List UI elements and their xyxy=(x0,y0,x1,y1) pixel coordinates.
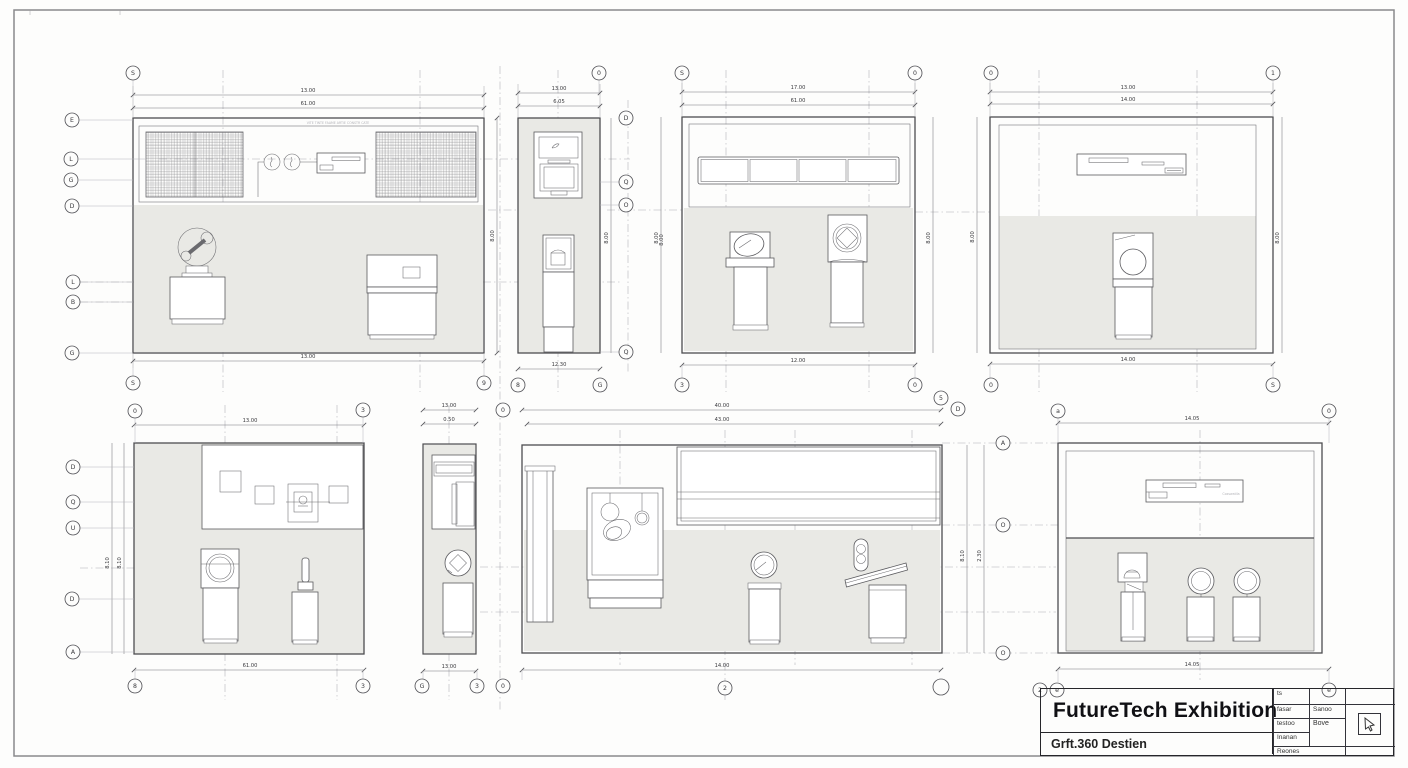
grid-bubble: E xyxy=(65,113,79,127)
svg-text:8.00: 8.00 xyxy=(490,230,496,242)
round-diamond-exhibit xyxy=(445,550,471,576)
svg-text:8.00: 8.00 xyxy=(654,232,660,244)
grid-bubble: 5 xyxy=(934,391,948,405)
svg-text:61.00: 61.00 xyxy=(301,101,316,107)
grid-bubble: L xyxy=(64,152,78,166)
svg-text:2: 2 xyxy=(723,685,727,692)
sign-micro-text: Coxswatila xyxy=(1222,492,1239,496)
info-sign: Coxswatila xyxy=(1146,480,1243,502)
svg-text:L: L xyxy=(71,279,75,286)
ring-exhibit-2 xyxy=(1233,568,1260,641)
svg-text:8.10: 8.10 xyxy=(960,550,966,562)
grid-bubble: 0 xyxy=(984,66,998,80)
grid-bubble: Q xyxy=(66,495,80,509)
grid-bubble: L xyxy=(66,275,80,289)
svg-text:0: 0 xyxy=(597,70,601,77)
svg-text:G: G xyxy=(70,350,75,357)
svg-text:13.00: 13.00 xyxy=(301,88,316,94)
grid-bubble: 0 xyxy=(908,66,922,80)
grid-bubble: 0 xyxy=(1322,404,1336,418)
grid-bubble: 3 xyxy=(675,378,689,392)
column-pillar xyxy=(525,466,555,622)
round-display-mid xyxy=(748,552,781,644)
wall-fixture-icons xyxy=(258,154,317,197)
capsule-object xyxy=(854,539,868,571)
svg-text:43.00: 43.00 xyxy=(715,417,730,423)
grid-bubble: D xyxy=(619,111,633,125)
grid-bubble: 0 xyxy=(984,378,998,392)
svg-text:3: 3 xyxy=(680,382,684,389)
wall-sign xyxy=(317,153,365,173)
elevation-panel-5: 13.00 61.00 8.10 8.10 xyxy=(79,417,366,679)
svg-text:8.00: 8.00 xyxy=(926,232,932,244)
pedestal-diamond-exhibit xyxy=(828,215,867,327)
window-strip xyxy=(698,157,899,184)
display-case-round xyxy=(201,549,239,643)
display-case-exhibit xyxy=(367,255,437,339)
svg-text:S: S xyxy=(131,70,135,77)
svg-text:B: B xyxy=(71,299,75,306)
titleblock-cell: Reones xyxy=(1273,746,1345,755)
grid-bubble: U xyxy=(66,521,80,535)
svg-text:40.00: 40.00 xyxy=(715,403,730,409)
svg-text:17.00: 17.00 xyxy=(791,85,806,91)
svg-text:3: 3 xyxy=(361,683,365,690)
grid-bubble: Q xyxy=(619,175,633,189)
grid-bubble: a xyxy=(1051,404,1065,418)
grid-bubble: A xyxy=(66,645,80,659)
grid-bubble: 3 xyxy=(470,679,484,693)
svg-text:13.00: 13.00 xyxy=(442,403,457,409)
svg-text:0: 0 xyxy=(989,382,993,389)
svg-text:0: 0 xyxy=(501,407,505,414)
titleblock-cell xyxy=(1309,689,1345,704)
svg-text:D: D xyxy=(71,464,76,471)
svg-text:61.00: 61.00 xyxy=(791,98,806,104)
drawing-sheet: VITE TINTE FAAME ARTIE CONSTR CATE 13.00 xyxy=(0,0,1408,768)
grid-bubble: D xyxy=(951,402,965,416)
grid-bubble: O xyxy=(619,198,633,212)
svg-text:a: a xyxy=(1056,408,1060,415)
titleblock-cell: Bove xyxy=(1309,718,1345,746)
svg-text:S: S xyxy=(1271,382,1275,389)
grid-bubble: S xyxy=(675,66,689,80)
ring-exhibit-1 xyxy=(1187,568,1214,641)
svg-text:Q: Q xyxy=(71,499,76,506)
svg-text:O: O xyxy=(1001,650,1006,657)
grid-bubble: D xyxy=(65,199,79,213)
svg-text:D: D xyxy=(624,115,629,122)
titleblock-cell: ts xyxy=(1273,689,1309,704)
titleblock-cell xyxy=(1345,746,1395,755)
lightbox-band xyxy=(677,447,940,525)
svg-text:13.00: 13.00 xyxy=(243,418,258,424)
grid-bubble: 0 xyxy=(496,679,510,693)
mesh-panel-left xyxy=(146,132,243,197)
grid-bubble: S xyxy=(126,66,140,80)
elevation-panel-4: 13.00 14.00 14.00 8.00 8.00 xyxy=(970,80,1282,378)
svg-text:E: E xyxy=(70,117,74,124)
svg-text:G: G xyxy=(69,177,74,184)
svg-text:2.30: 2.30 xyxy=(977,550,983,562)
stamp-box xyxy=(1358,713,1381,735)
svg-text:S: S xyxy=(131,380,135,387)
svg-text:0: 0 xyxy=(133,408,137,415)
grid-bubble: O xyxy=(996,518,1010,532)
svg-text:14.05: 14.05 xyxy=(1185,662,1200,668)
screen-unit xyxy=(539,137,578,195)
grid-bubble: 0 xyxy=(908,378,922,392)
svg-text:G: G xyxy=(420,683,425,690)
svg-text:0: 0 xyxy=(989,70,993,77)
grid-bubble: D xyxy=(65,592,79,606)
grid-bubble: D xyxy=(66,460,80,474)
svg-text:61.00: 61.00 xyxy=(243,663,258,669)
grid-bubble: 0 xyxy=(496,403,510,417)
svg-text:8.10: 8.10 xyxy=(117,557,123,569)
hanging-objects-case xyxy=(587,488,663,608)
svg-text:13.00: 13.00 xyxy=(301,354,316,360)
titleblock-cell xyxy=(1345,689,1395,704)
svg-text:0: 0 xyxy=(913,70,917,77)
svg-text:3: 3 xyxy=(361,407,365,414)
svg-text:D: D xyxy=(70,596,75,603)
grid-bubble: 3 xyxy=(356,679,370,693)
grid-bubble: S xyxy=(1266,378,1280,392)
grid-bubble: O xyxy=(996,646,1010,660)
svg-text:0.50: 0.50 xyxy=(443,417,455,423)
elevation-panel-8: Coxswatila 14. xyxy=(1056,416,1331,682)
titleblock-cell: Inanan xyxy=(1273,732,1309,746)
svg-text:9: 9 xyxy=(482,380,486,387)
pedestal-sphere-exhibit xyxy=(1113,233,1153,339)
svg-text:12.00: 12.00 xyxy=(791,358,806,364)
grid-bubble: 9 xyxy=(477,376,491,390)
display-case-small xyxy=(543,235,574,352)
svg-text:13.00: 13.00 xyxy=(1121,85,1136,91)
svg-text:8.00: 8.00 xyxy=(970,231,976,243)
svg-text:8: 8 xyxy=(516,382,520,389)
svg-text:3: 3 xyxy=(475,683,479,690)
grid-bubble: 8 xyxy=(128,679,142,693)
grid-bubble: G xyxy=(65,346,79,360)
pedestal-small xyxy=(443,583,473,637)
elevation-panel-3: 17.00 61.00 12.00 8.00 8.00 xyxy=(654,80,933,378)
svg-text:O: O xyxy=(1001,522,1006,529)
grid-bubble: Q xyxy=(619,345,633,359)
grid-bubble xyxy=(933,679,949,695)
spec-note: VITE TINTE FAAME ARTIE CONSTR CATE xyxy=(307,121,370,125)
titleblock-cell: testoo xyxy=(1273,718,1309,732)
svg-text:14.00: 14.00 xyxy=(715,663,730,669)
svg-text:D: D xyxy=(956,406,961,413)
elevation-panel-2: 13.00 6.05 12.30 8.00 8.00 xyxy=(516,80,665,371)
grid-bubble: A xyxy=(996,436,1010,450)
svg-text:D: D xyxy=(70,203,75,210)
grid-bubble: G xyxy=(593,378,607,392)
grid-bubble: 1 xyxy=(1266,66,1280,80)
mesh-panel-right xyxy=(376,132,476,197)
dome-case-exhibit xyxy=(1118,553,1147,641)
svg-text:Q: Q xyxy=(624,179,629,186)
cad-canvas: VITE TINTE FAAME ARTIE CONSTR CATE 13.00 xyxy=(0,0,1408,768)
svg-text:6.05: 6.05 xyxy=(553,99,565,105)
svg-text:8.00: 8.00 xyxy=(604,232,610,244)
svg-text:14.05: 14.05 xyxy=(1185,416,1200,422)
svg-text:13.00: 13.00 xyxy=(552,86,567,92)
svg-text:Q: Q xyxy=(624,349,629,356)
cursor-icon xyxy=(1359,714,1380,734)
pedestal-right xyxy=(869,585,906,643)
svg-text:12.30: 12.30 xyxy=(552,362,567,368)
svg-text:S: S xyxy=(680,70,684,77)
grid-bubble: S xyxy=(126,376,140,390)
svg-text:14.00: 14.00 xyxy=(1121,97,1136,103)
grid-bubble: B xyxy=(66,295,80,309)
svg-text:14.00: 14.00 xyxy=(1121,357,1136,363)
elevation-panel-6: 13.00 0.50 13.00 xyxy=(421,403,478,679)
svg-text:0: 0 xyxy=(501,683,505,690)
grid-bubble: 3 xyxy=(356,403,370,417)
titleblock-cell: fasar xyxy=(1273,704,1309,718)
svg-text:O: O xyxy=(624,202,629,209)
svg-text:1: 1 xyxy=(1271,70,1275,77)
svg-text:8.00: 8.00 xyxy=(1275,232,1281,244)
title-block: FutureTech Exhibition Grft.360 Destien t… xyxy=(1040,688,1394,756)
grid-bubble: 0 xyxy=(592,66,606,80)
svg-text:8.10: 8.10 xyxy=(105,557,111,569)
elevation-panel-1: VITE TINTE FAAME ARTIE CONSTR CATE 13.00 xyxy=(79,80,499,376)
grid-bubble: 0 xyxy=(128,404,142,418)
svg-text:0: 0 xyxy=(913,382,917,389)
grid-bubble: 2 xyxy=(718,681,732,695)
svg-text:8: 8 xyxy=(133,683,137,690)
svg-text:G: G xyxy=(598,382,603,389)
grid-bubble: 8 xyxy=(511,378,525,392)
project-subtitle: Grft.360 Destien xyxy=(1041,732,1273,754)
svg-text:U: U xyxy=(71,525,76,532)
svg-text:5: 5 xyxy=(939,395,943,402)
wall-sign-wide xyxy=(1077,154,1186,175)
grid-bubble: G xyxy=(64,173,78,187)
svg-text:13.00: 13.00 xyxy=(442,664,457,670)
project-title: FutureTech Exhibition xyxy=(1041,689,1273,732)
svg-text:0: 0 xyxy=(1327,408,1331,415)
elevation-panel-7: 40.00 43.00 14.00 8.10 2.30 xyxy=(520,403,984,680)
svg-text:L: L xyxy=(69,156,73,163)
grid-bubble: G xyxy=(415,679,429,693)
titleblock-cell: Sanoo xyxy=(1309,704,1345,718)
